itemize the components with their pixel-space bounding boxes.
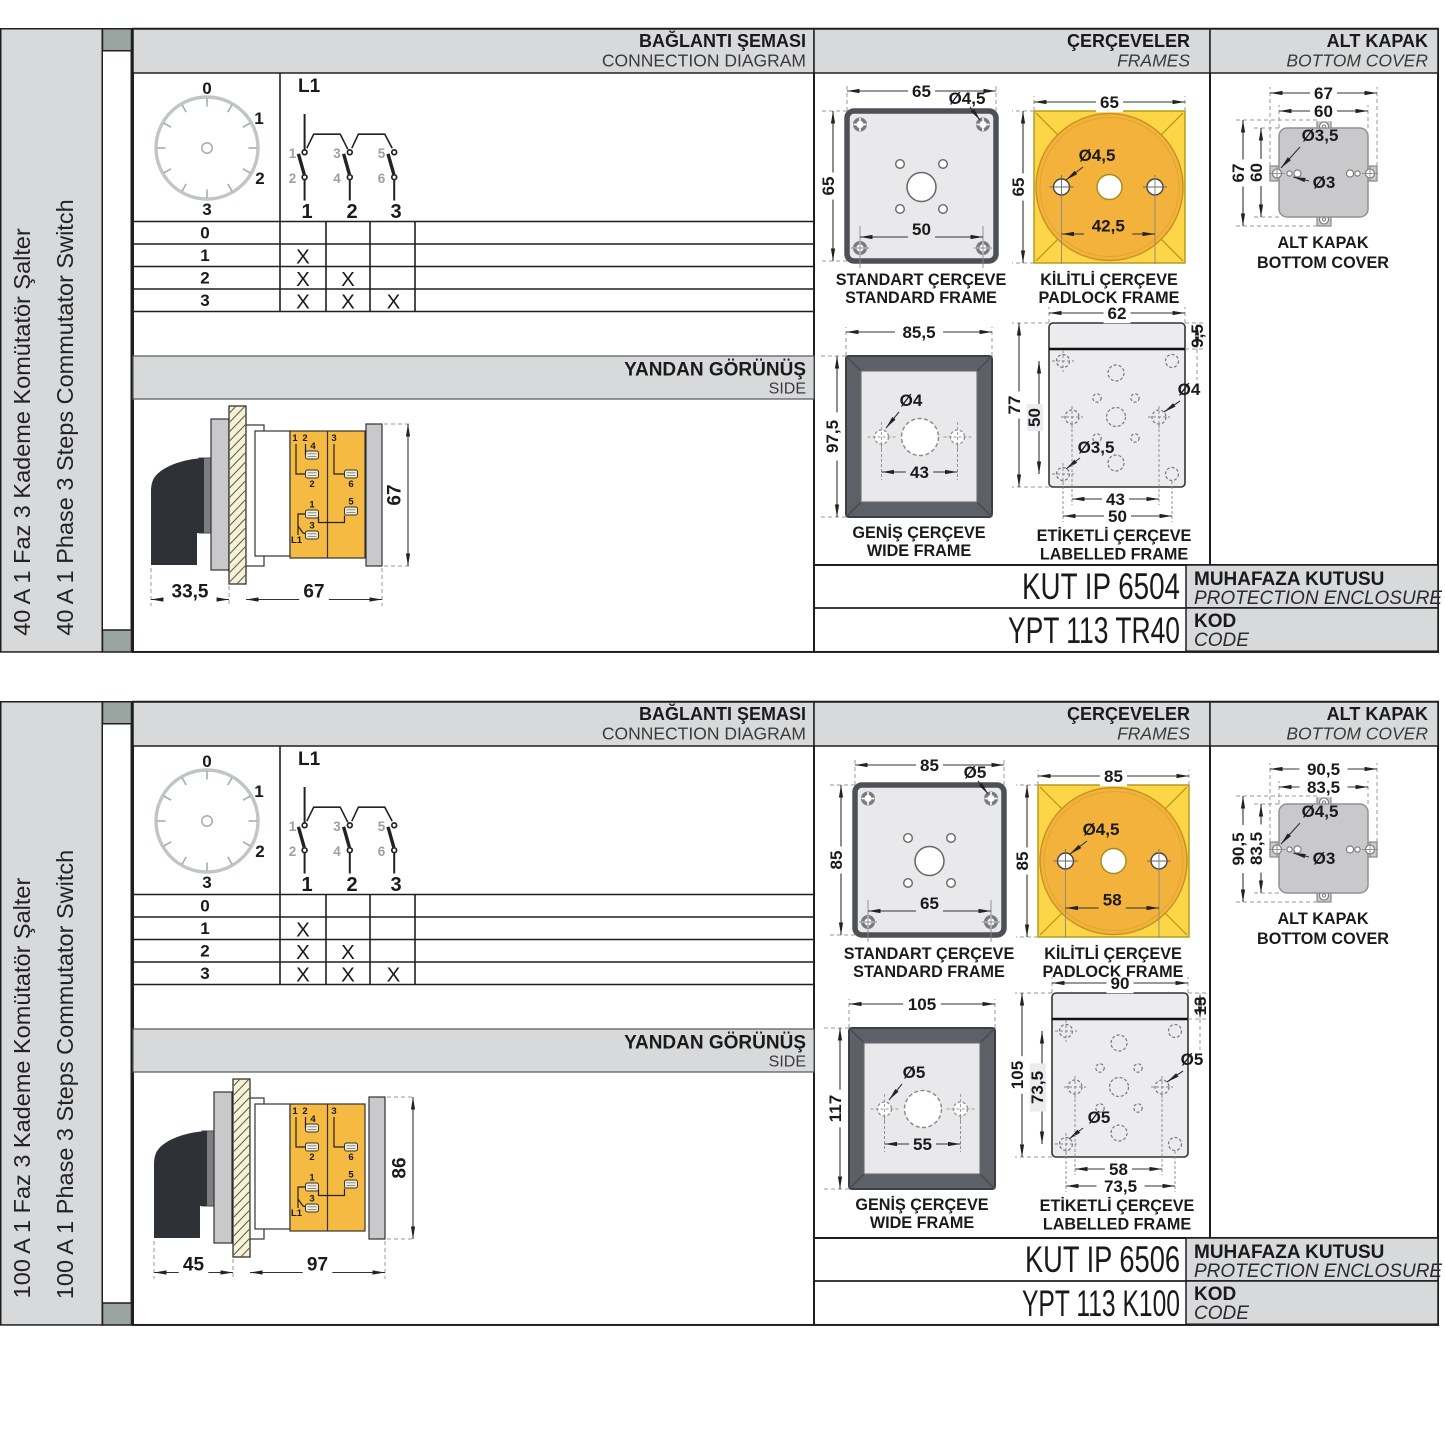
svg-text:97,5: 97,5 xyxy=(823,420,842,453)
svg-text:Ø4: Ø4 xyxy=(1178,380,1201,399)
svg-text:MUHAFAZA KUTUSU: MUHAFAZA KUTUSU xyxy=(1194,1242,1384,1263)
svg-text:Ø5: Ø5 xyxy=(1181,1050,1204,1069)
svg-text:Ø4,5: Ø4,5 xyxy=(1083,820,1120,839)
svg-text:4: 4 xyxy=(333,844,341,859)
svg-text:YANDAN GÖRÜNÜŞ: YANDAN GÖRÜNÜŞ xyxy=(624,1033,806,1054)
svg-text:85: 85 xyxy=(1013,852,1032,871)
svg-text:CONNECTION DIAGRAM: CONNECTION DIAGRAM xyxy=(602,724,806,744)
svg-text:90,5: 90,5 xyxy=(1229,832,1248,865)
svg-text:1: 1 xyxy=(200,919,209,938)
svg-text:STANDARD FRAME: STANDARD FRAME xyxy=(845,289,997,307)
svg-text:73,5: 73,5 xyxy=(1028,1071,1047,1104)
svg-text:X: X xyxy=(341,291,355,314)
svg-text:X: X xyxy=(296,268,310,291)
svg-text:X: X xyxy=(296,941,310,964)
svg-text:ALT KAPAK: ALT KAPAK xyxy=(1277,910,1368,928)
svg-text:BOTTOM COVER: BOTTOM COVER xyxy=(1257,254,1389,272)
svg-text:5: 5 xyxy=(378,146,386,161)
svg-text:1: 1 xyxy=(289,819,297,834)
svg-text:Ø5: Ø5 xyxy=(903,1063,926,1082)
svg-text:L1: L1 xyxy=(298,749,321,770)
svg-text:65: 65 xyxy=(1100,93,1119,112)
svg-text:SIDE: SIDE xyxy=(769,1054,806,1071)
svg-text:L1: L1 xyxy=(291,535,303,546)
svg-text:86: 86 xyxy=(389,1157,410,1178)
svg-text:1: 1 xyxy=(200,246,209,265)
svg-text:43: 43 xyxy=(910,463,929,482)
svg-text:85: 85 xyxy=(827,851,846,870)
svg-text:GENİŞ ÇERÇEVE: GENİŞ ÇERÇEVE xyxy=(852,524,985,542)
svg-text:105: 105 xyxy=(1008,1061,1027,1089)
svg-text:SIDE: SIDE xyxy=(769,381,806,398)
svg-text:ÇERÇEVELER: ÇERÇEVELER xyxy=(1067,31,1190,51)
svg-text:LABELLED FRAME: LABELLED FRAME xyxy=(1043,1216,1192,1234)
svg-text:KOD: KOD xyxy=(1194,611,1236,632)
svg-text:2: 2 xyxy=(289,171,297,186)
svg-text:77: 77 xyxy=(1005,396,1024,415)
svg-text:100 A 1 Faz 3 Kademe Komütatör: 100 A 1 Faz 3 Kademe Komütatör Şalter xyxy=(9,878,35,1299)
svg-text:ALT KAPAK: ALT KAPAK xyxy=(1327,704,1428,724)
svg-text:1: 1 xyxy=(301,874,312,896)
svg-text:9,5: 9,5 xyxy=(1188,324,1207,348)
svg-text:CODE: CODE xyxy=(1194,630,1249,651)
svg-text:0: 0 xyxy=(202,752,211,771)
svg-text:3: 3 xyxy=(333,819,341,834)
svg-text:PROTECTION ENCLOSURE: PROTECTION ENCLOSURE xyxy=(1194,588,1442,609)
svg-text:LABELLED FRAME: LABELLED FRAME xyxy=(1040,546,1189,564)
svg-text:Ø4,5: Ø4,5 xyxy=(1079,146,1116,165)
svg-text:X: X xyxy=(296,246,310,269)
svg-text:CONNECTION DIAGRAM: CONNECTION DIAGRAM xyxy=(602,51,806,71)
svg-text:1: 1 xyxy=(292,1106,298,1117)
svg-text:BAĞLANTI ŞEMASI: BAĞLANTI ŞEMASI xyxy=(639,30,806,51)
svg-text:3: 3 xyxy=(202,200,211,219)
svg-text:65: 65 xyxy=(912,82,931,101)
svg-text:3: 3 xyxy=(200,964,209,983)
svg-text:2: 2 xyxy=(200,942,209,961)
svg-text:97: 97 xyxy=(307,1255,328,1276)
svg-text:Ø4,5: Ø4,5 xyxy=(1302,802,1339,821)
svg-text:X: X xyxy=(296,291,310,314)
svg-text:62: 62 xyxy=(1108,304,1127,323)
svg-text:MUHAFAZA KUTUSU: MUHAFAZA KUTUSU xyxy=(1194,569,1384,590)
svg-text:4: 4 xyxy=(310,1114,316,1125)
svg-text:105: 105 xyxy=(908,995,936,1014)
svg-text:67: 67 xyxy=(1314,84,1333,103)
svg-text:117: 117 xyxy=(826,1095,845,1122)
svg-text:BAĞLANTI ŞEMASI: BAĞLANTI ŞEMASI xyxy=(639,703,806,724)
svg-text:45: 45 xyxy=(183,1255,205,1276)
svg-text:2: 2 xyxy=(309,479,314,490)
svg-text:KİLİTLİ ÇERÇEVE: KİLİTLİ ÇERÇEVE xyxy=(1040,271,1178,289)
svg-text:55: 55 xyxy=(913,1135,932,1154)
svg-text:67: 67 xyxy=(1229,164,1248,183)
svg-text:1: 1 xyxy=(309,1173,315,1184)
svg-text:85: 85 xyxy=(1104,767,1123,786)
svg-text:1: 1 xyxy=(254,109,263,128)
svg-text:FRAMES: FRAMES xyxy=(1117,51,1190,71)
svg-text:4: 4 xyxy=(333,171,341,186)
svg-text:33,5: 33,5 xyxy=(172,582,209,603)
svg-text:2: 2 xyxy=(302,1106,307,1117)
svg-text:100 A 1 Phase 3 Steps Commutat: 100 A 1 Phase 3 Steps Commutator Switch xyxy=(52,850,78,1299)
svg-text:6: 6 xyxy=(348,479,353,490)
svg-text:3: 3 xyxy=(331,1106,336,1117)
svg-text:X: X xyxy=(341,941,355,964)
svg-text:ALT KAPAK: ALT KAPAK xyxy=(1277,234,1368,252)
svg-text:2: 2 xyxy=(309,1152,314,1163)
svg-text:90,5: 90,5 xyxy=(1307,760,1340,779)
svg-text:PROTECTION ENCLOSURE: PROTECTION ENCLOSURE xyxy=(1194,1261,1442,1282)
svg-text:67: 67 xyxy=(384,484,405,505)
svg-text:Ø3: Ø3 xyxy=(1313,173,1336,192)
svg-text:BOTTOM COVER: BOTTOM COVER xyxy=(1257,930,1389,948)
svg-text:85,5: 85,5 xyxy=(902,323,935,342)
svg-text:Ø5: Ø5 xyxy=(964,763,987,782)
svg-text:ETİKETLİ ÇERÇEVE: ETİKETLİ ÇERÇEVE xyxy=(1040,1197,1195,1215)
svg-text:1: 1 xyxy=(254,782,263,801)
svg-text:WIDE FRAME: WIDE FRAME xyxy=(870,1214,975,1232)
svg-text:0: 0 xyxy=(200,897,209,916)
svg-text:KOD: KOD xyxy=(1194,1284,1236,1305)
svg-text:85: 85 xyxy=(920,756,939,775)
svg-text:ALT KAPAK: ALT KAPAK xyxy=(1327,31,1428,51)
svg-text:3: 3 xyxy=(390,874,401,896)
svg-text:2: 2 xyxy=(346,874,357,896)
svg-text:KUT IP 6504: KUT IP 6504 xyxy=(1022,566,1180,607)
svg-text:3: 3 xyxy=(309,1194,314,1205)
svg-text:WIDE FRAME: WIDE FRAME xyxy=(867,542,972,560)
svg-text:STANDART ÇERÇEVE: STANDART ÇERÇEVE xyxy=(844,945,1015,963)
svg-text:1: 1 xyxy=(292,433,298,444)
svg-text:3: 3 xyxy=(202,873,211,892)
svg-text:58: 58 xyxy=(1103,891,1122,910)
svg-text:1: 1 xyxy=(301,201,312,223)
svg-text:50: 50 xyxy=(1108,507,1127,526)
svg-text:YPT 113 K100: YPT 113 K100 xyxy=(1022,1283,1180,1324)
svg-text:KİLİTLİ ÇERÇEVE: KİLİTLİ ÇERÇEVE xyxy=(1044,945,1182,963)
svg-text:6: 6 xyxy=(378,171,386,186)
svg-text:67: 67 xyxy=(303,582,324,603)
svg-text:60: 60 xyxy=(1314,102,1333,121)
svg-text:5: 5 xyxy=(378,819,386,834)
svg-text:5: 5 xyxy=(348,1170,354,1181)
svg-text:2: 2 xyxy=(255,842,264,861)
svg-text:73,5: 73,5 xyxy=(1104,1177,1137,1196)
svg-text:6: 6 xyxy=(348,1152,353,1163)
svg-text:X: X xyxy=(341,268,355,291)
svg-text:STANDARD FRAME: STANDARD FRAME xyxy=(853,963,1005,981)
svg-text:Ø4: Ø4 xyxy=(900,391,923,410)
svg-text:40 A 1 Phase 3 Steps Commutato: 40 A 1 Phase 3 Steps Commutator Switch xyxy=(52,199,78,635)
svg-text:5: 5 xyxy=(348,497,354,508)
svg-text:65: 65 xyxy=(1009,178,1028,197)
svg-text:L1: L1 xyxy=(291,1208,303,1219)
svg-text:KUT IP 6506: KUT IP 6506 xyxy=(1025,1239,1180,1280)
svg-text:2: 2 xyxy=(200,269,209,288)
svg-text:50: 50 xyxy=(1025,408,1044,427)
svg-text:BOTTOM COVER: BOTTOM COVER xyxy=(1286,724,1428,744)
svg-text:13: 13 xyxy=(1191,997,1210,1016)
svg-text:X: X xyxy=(296,964,310,987)
svg-text:CODE: CODE xyxy=(1194,1303,1249,1324)
svg-text:Ø4,5: Ø4,5 xyxy=(949,89,986,108)
svg-text:60: 60 xyxy=(1247,163,1266,182)
svg-text:65: 65 xyxy=(920,894,939,913)
svg-text:0: 0 xyxy=(202,79,211,98)
svg-text:Ø5: Ø5 xyxy=(1088,1108,1111,1127)
svg-text:2: 2 xyxy=(255,169,264,188)
svg-text:3: 3 xyxy=(333,146,341,161)
svg-text:Ø3,5: Ø3,5 xyxy=(1078,438,1115,457)
svg-text:GENİŞ ÇERÇEVE: GENİŞ ÇERÇEVE xyxy=(855,1196,988,1214)
svg-text:3: 3 xyxy=(331,433,336,444)
svg-text:X: X xyxy=(341,964,355,987)
svg-text:1: 1 xyxy=(289,146,297,161)
svg-text:3: 3 xyxy=(200,291,209,310)
svg-text:L1: L1 xyxy=(298,76,321,97)
svg-text:YPT 113 TR40: YPT 113 TR40 xyxy=(1008,610,1180,651)
svg-text:2: 2 xyxy=(346,201,357,223)
svg-text:83,5: 83,5 xyxy=(1247,832,1266,865)
svg-text:FRAMES: FRAMES xyxy=(1117,724,1190,744)
svg-text:83,5: 83,5 xyxy=(1307,778,1340,797)
svg-text:40 A 1 Faz 3 Kademe Komütatör: 40 A 1 Faz 3 Kademe Komütatör Şalter xyxy=(9,228,35,636)
svg-text:2: 2 xyxy=(302,433,307,444)
svg-text:42,5: 42,5 xyxy=(1092,217,1125,236)
svg-text:Ø3: Ø3 xyxy=(1313,849,1336,868)
svg-text:6: 6 xyxy=(378,844,386,859)
svg-text:90: 90 xyxy=(1111,974,1130,993)
svg-text:X: X xyxy=(387,964,401,987)
svg-text:50: 50 xyxy=(912,220,931,239)
svg-text:0: 0 xyxy=(200,224,209,243)
svg-text:Ø3,5: Ø3,5 xyxy=(1302,126,1339,145)
svg-text:YANDAN GÖRÜNÜŞ: YANDAN GÖRÜNÜŞ xyxy=(624,360,806,381)
svg-text:1: 1 xyxy=(309,500,315,511)
svg-text:2: 2 xyxy=(289,844,297,859)
svg-text:3: 3 xyxy=(309,521,314,532)
svg-text:BOTTOM COVER: BOTTOM COVER xyxy=(1286,51,1428,71)
svg-text:65: 65 xyxy=(819,177,838,196)
svg-text:STANDART ÇERÇEVE: STANDART ÇERÇEVE xyxy=(836,271,1007,289)
svg-text:ETİKETLİ ÇERÇEVE: ETİKETLİ ÇERÇEVE xyxy=(1037,527,1192,545)
svg-text:ÇERÇEVELER: ÇERÇEVELER xyxy=(1067,704,1190,724)
svg-text:X: X xyxy=(296,919,310,942)
svg-text:X: X xyxy=(387,291,401,314)
svg-text:4: 4 xyxy=(310,441,316,452)
svg-text:3: 3 xyxy=(390,201,401,223)
